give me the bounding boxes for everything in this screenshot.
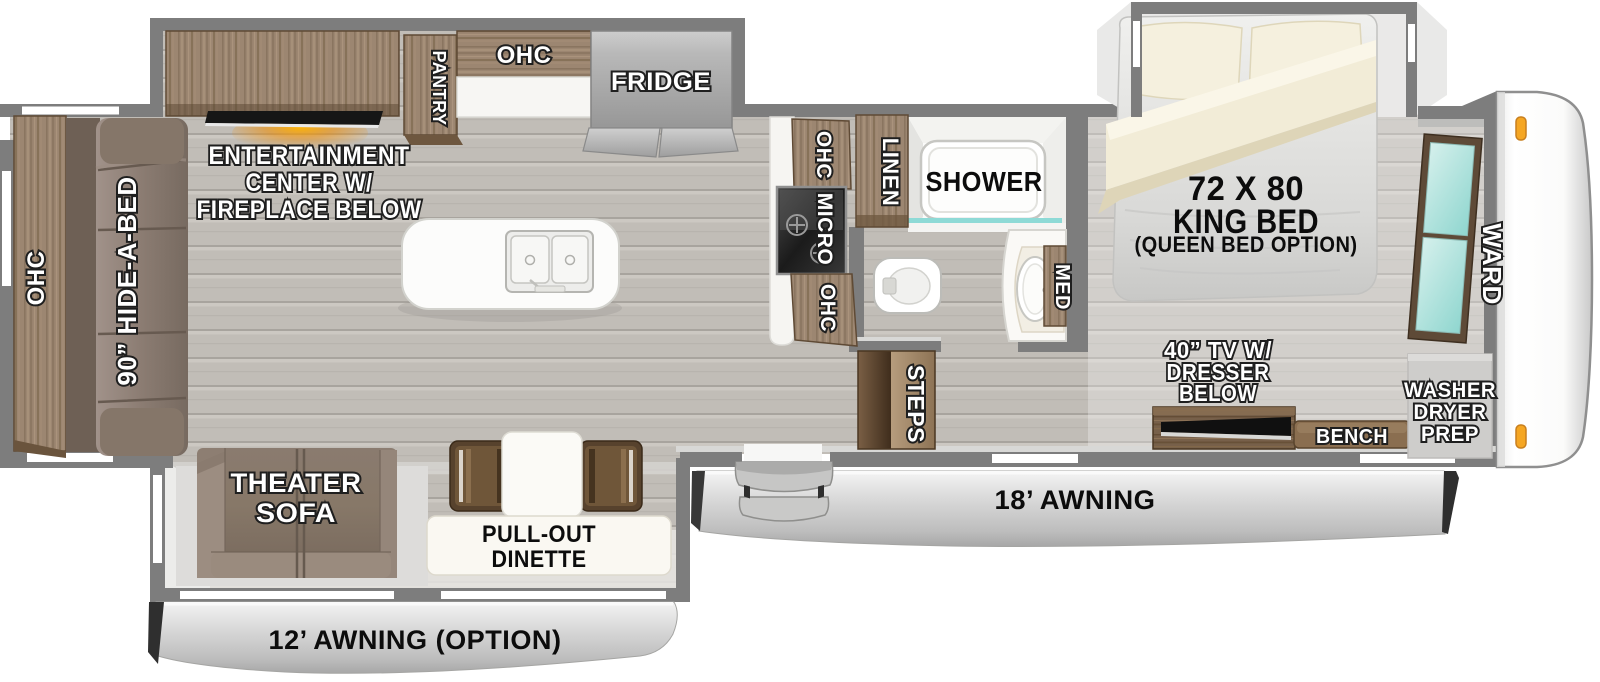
svg-text:FRIDGE: FRIDGE [611, 68, 711, 96]
svg-text:OHC: OHC [23, 251, 50, 306]
svg-text:OHC: OHC [812, 131, 835, 179]
svg-text:BELOW: BELOW [1179, 380, 1257, 406]
svg-text:CENTER W/: CENTER W/ [246, 169, 373, 197]
svg-text:LINEN: LINEN [878, 138, 903, 207]
svg-text:ENTERTAINMENT: ENTERTAINMENT [209, 142, 410, 170]
svg-text:FIREPLACE BELOW: FIREPLACE BELOW [197, 196, 422, 224]
svg-text:WARD: WARD [1477, 223, 1507, 304]
svg-text:OHC: OHC [816, 284, 839, 332]
svg-text:PULL-OUT: PULL-OUT [482, 521, 596, 548]
svg-text:DRYER: DRYER [1414, 401, 1487, 424]
svg-text:12’ AWNING (OPTION): 12’ AWNING (OPTION) [269, 625, 562, 655]
svg-text:DINETTE: DINETTE [492, 546, 587, 573]
svg-text:OHC: OHC [497, 42, 552, 69]
svg-text:WASHER: WASHER [1404, 379, 1496, 402]
svg-text:STEPS: STEPS [903, 365, 929, 443]
svg-text:BENCH: BENCH [1316, 426, 1388, 448]
svg-text:18’ AWNING: 18’ AWNING [995, 485, 1156, 515]
svg-text:MICRO: MICRO [813, 193, 836, 266]
svg-text:(QUEEN BED OPTION): (QUEEN BED OPTION) [1135, 232, 1358, 257]
svg-text:PREP: PREP [1421, 423, 1479, 446]
svg-text:THEATER: THEATER [231, 468, 362, 498]
svg-text:SOFA: SOFA [256, 498, 336, 528]
svg-text:90” HIDE-A-BED: 90” HIDE-A-BED [112, 176, 142, 385]
svg-text:SHOWER: SHOWER [926, 166, 1043, 197]
svg-text:PANTRY: PANTRY [429, 51, 449, 126]
svg-text:MED: MED [1051, 264, 1073, 310]
